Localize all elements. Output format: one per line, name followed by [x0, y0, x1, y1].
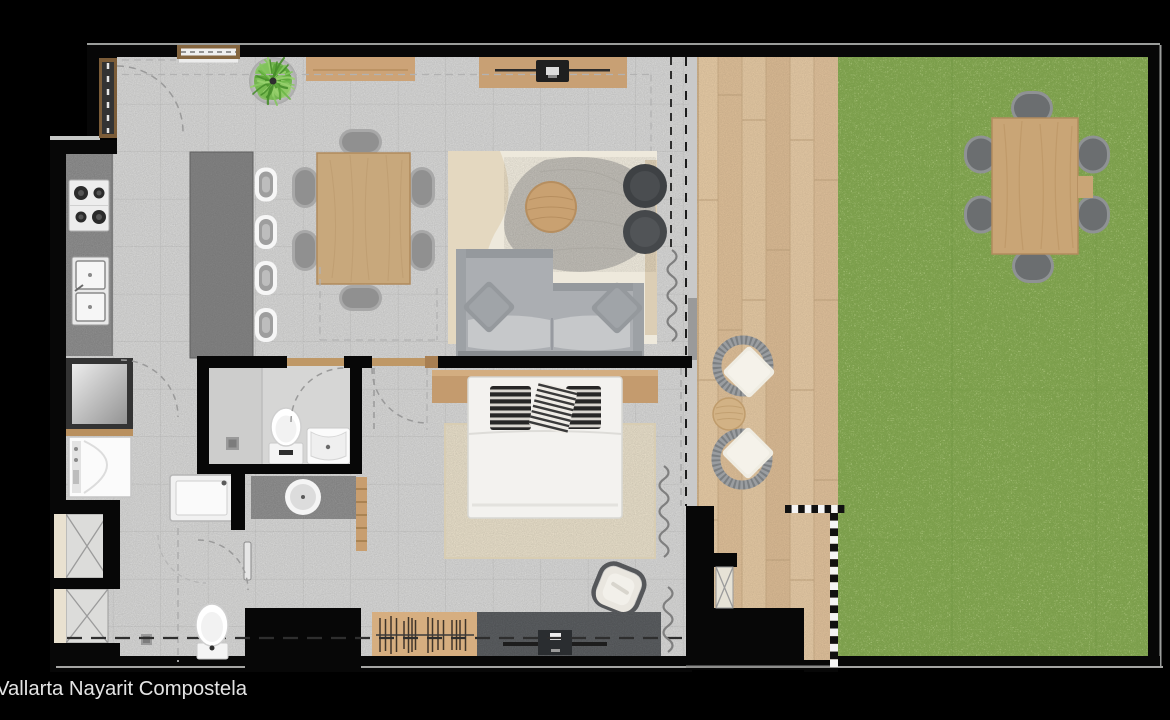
svg-text:Vallarta Nayarit Compostela: Vallarta Nayarit Compostela — [0, 678, 248, 700]
